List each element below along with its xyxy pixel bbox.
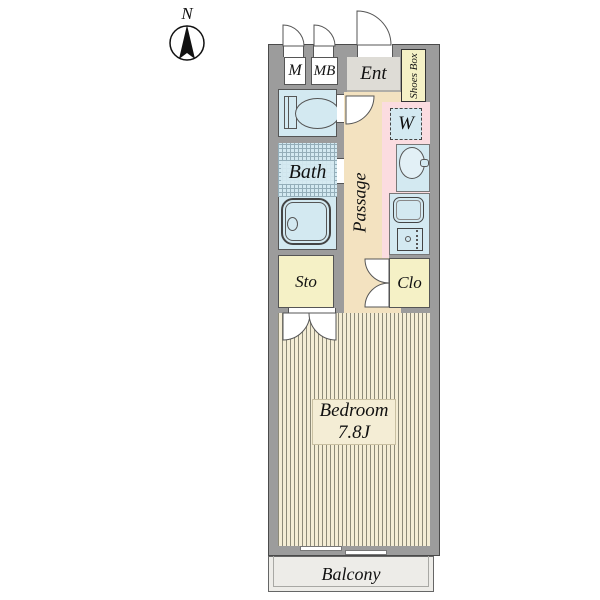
bedroom-label: Bedroom 7.8J (312, 399, 396, 445)
passage-label: Passage (345, 140, 375, 265)
washbasin-tap (420, 159, 429, 167)
door-swing-m (283, 25, 304, 46)
door-opening-bedroom (288, 308, 336, 313)
stove-burner (405, 236, 411, 242)
door-opening-entrance (357, 44, 393, 57)
room-meter-box-mb: MB (311, 57, 338, 85)
shoes-box-label: Shoes Box (408, 53, 420, 99)
shoes-box: Shoes Box (401, 49, 426, 102)
compass-needle-icon (179, 25, 195, 59)
room-closet: Clo (389, 258, 430, 308)
bathtub-drain (287, 217, 298, 231)
door-swing-mb (314, 25, 335, 46)
balcony-window-right (345, 550, 387, 555)
compass-north-label: N (176, 4, 198, 24)
bedroom-name: Bedroom (320, 400, 389, 422)
balcony-railing (273, 556, 429, 587)
kitchen-sink-inner (396, 200, 421, 220)
balcony-window-left (300, 546, 342, 551)
toilet-bowl (295, 98, 340, 129)
door-opening-m (283, 44, 304, 57)
washing-machine-space: W (390, 108, 422, 140)
bath-label: Bath (281, 161, 334, 184)
room-entrance: Ent (347, 57, 400, 92)
door-swing-entrance (357, 11, 391, 45)
room-meter-box-m: M (284, 57, 306, 85)
stove-grill (414, 230, 418, 249)
bedroom-size: 7.8J (338, 422, 370, 444)
door-opening-toilet (337, 94, 344, 123)
door-opening-bath (337, 158, 344, 184)
compass-circle (170, 26, 204, 60)
floorplan-canvas: N M MB Ent Shoes Box Passage W Bath Sto … (0, 0, 600, 600)
door-opening-mb (313, 44, 334, 57)
room-storage: Sto (278, 255, 334, 308)
